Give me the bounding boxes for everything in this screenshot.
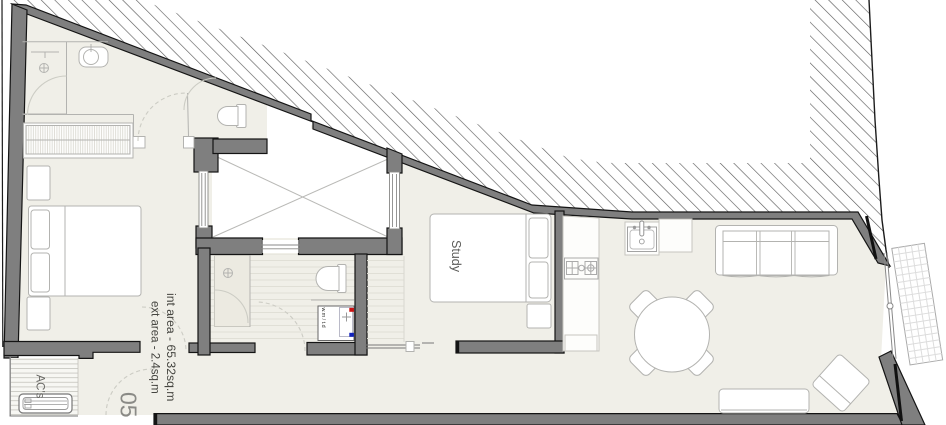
svg-text:AC's: AC's <box>34 375 46 399</box>
svg-text:ext area - 2.4sq.m: ext area - 2.4sq.m <box>149 301 161 394</box>
svg-text:int area - 65.32sq.m: int area - 65.32sq.m <box>164 293 178 401</box>
svg-text:05: 05 <box>116 392 142 418</box>
svg-text:w.m / t.d: w.m / t.d <box>320 307 326 328</box>
svg-text:Study: Study <box>449 240 463 273</box>
